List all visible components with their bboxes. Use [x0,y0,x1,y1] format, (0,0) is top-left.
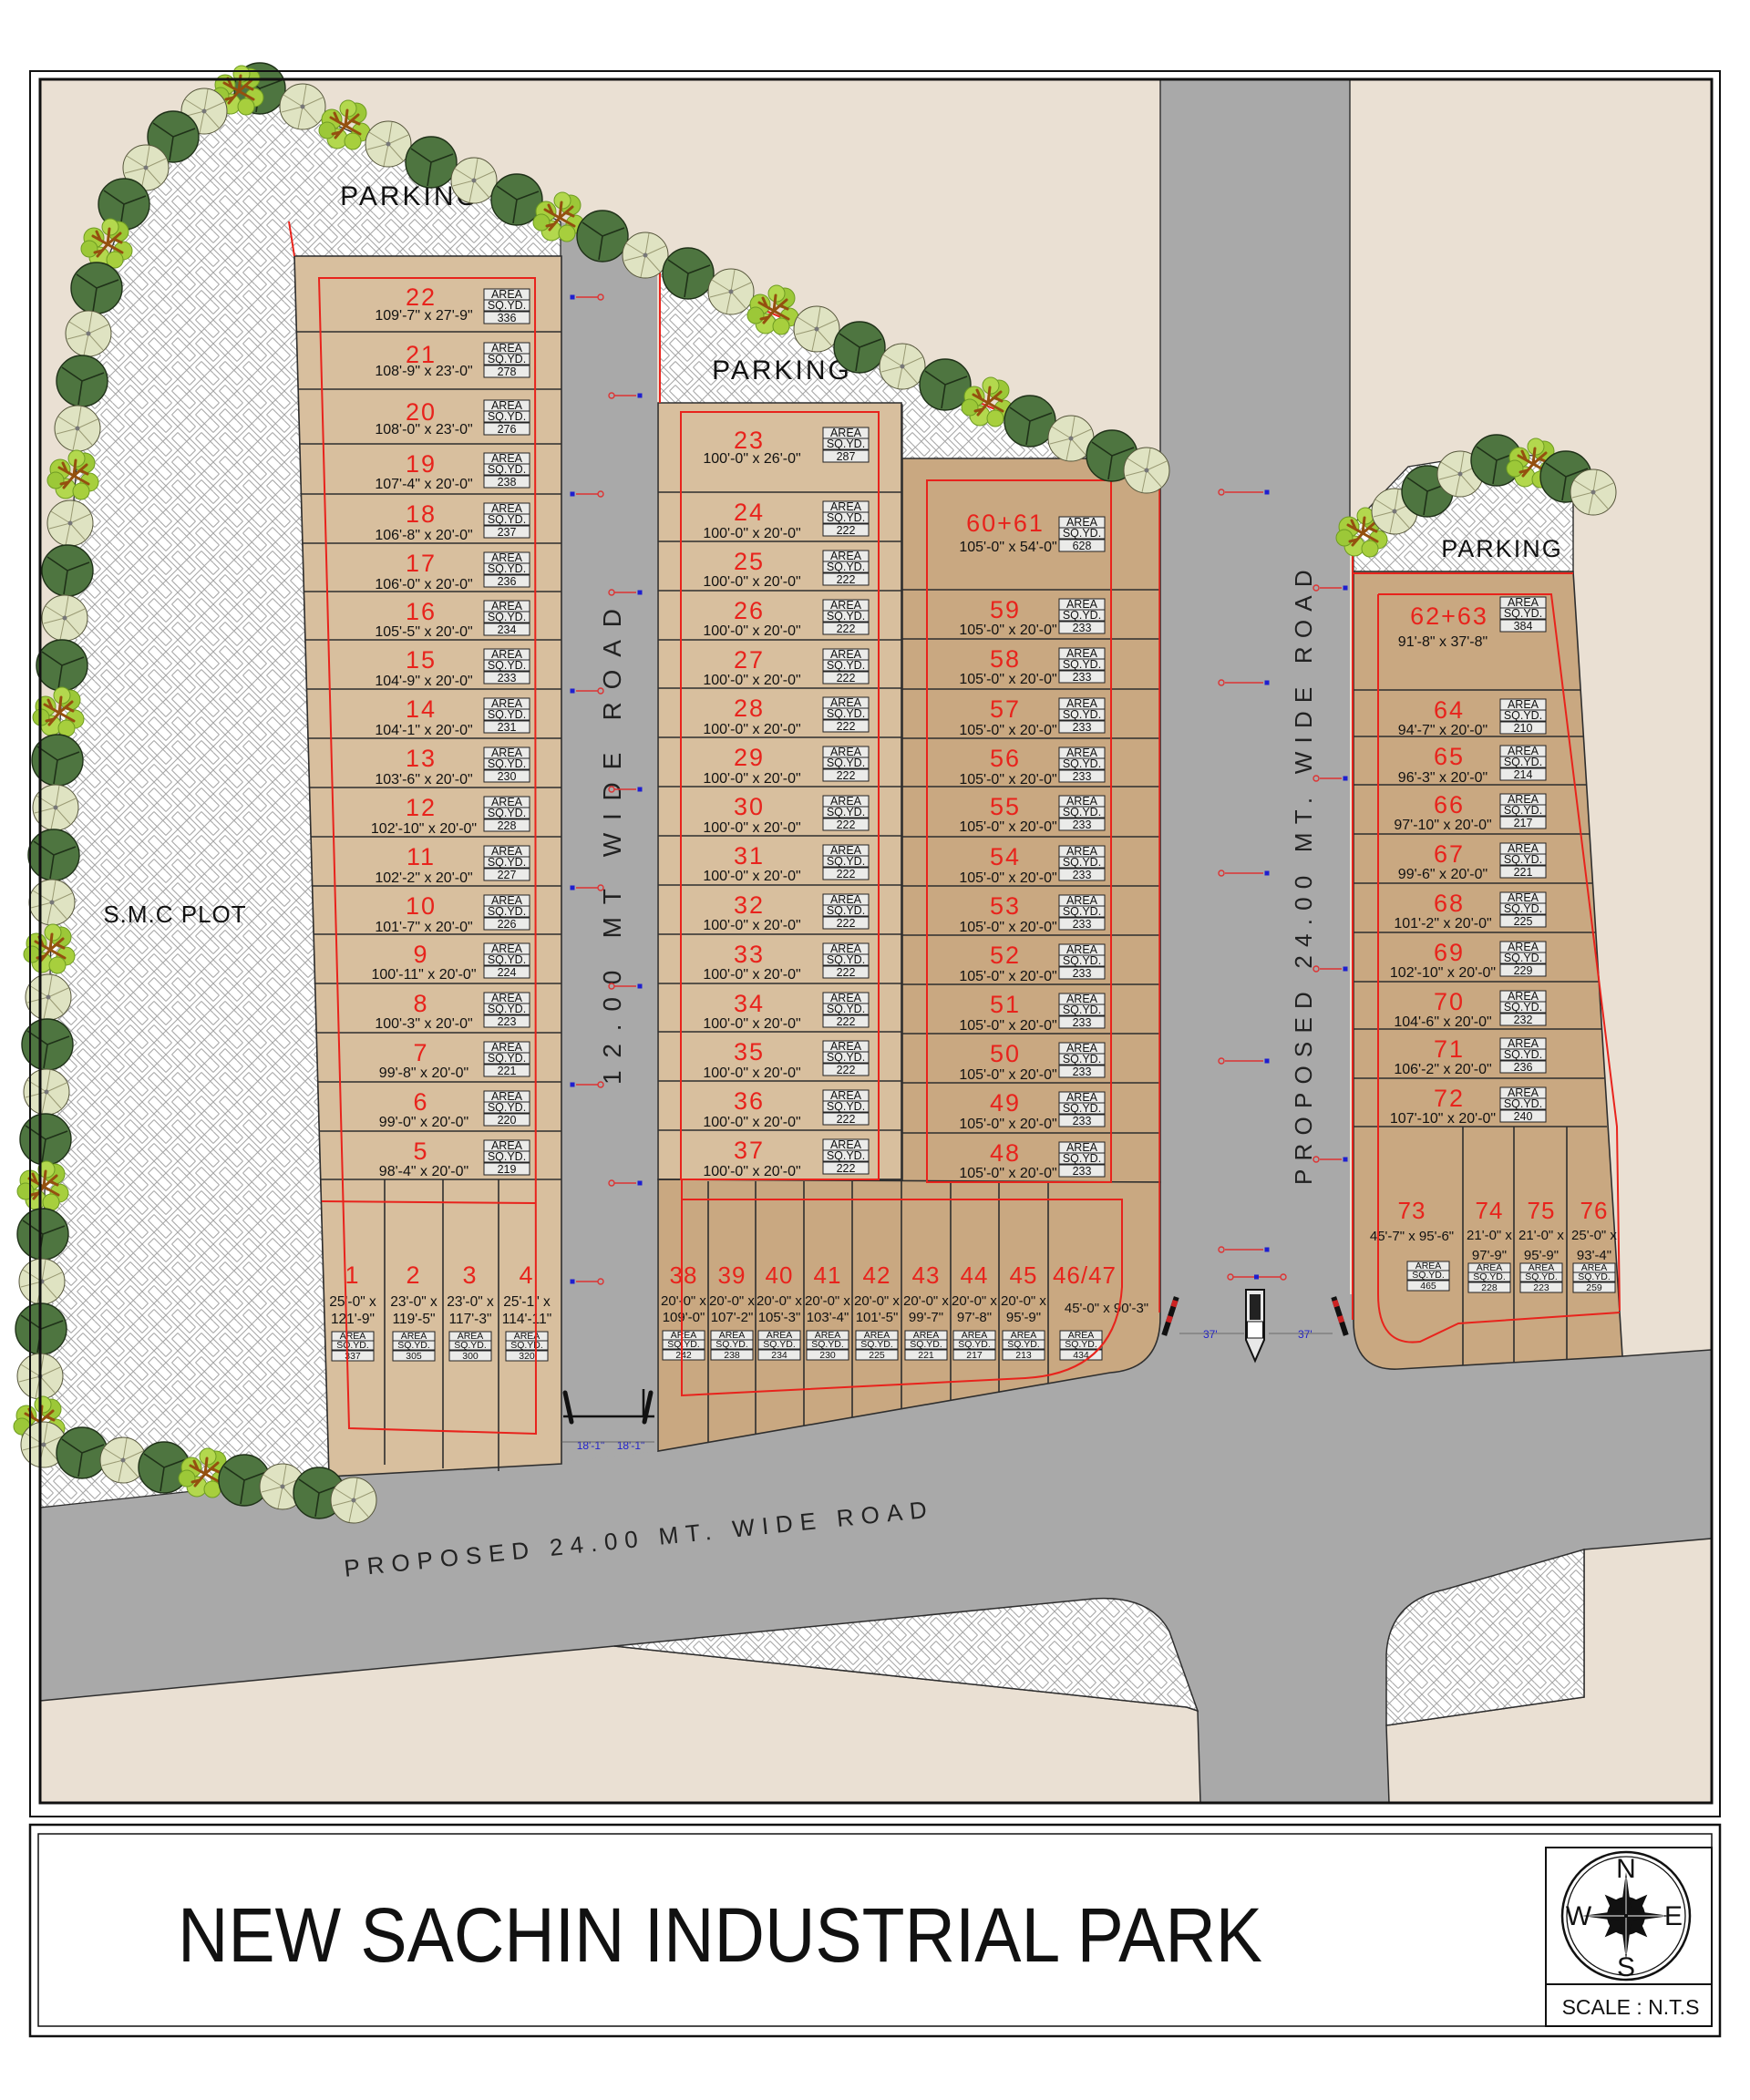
svg-text:234: 234 [771,1350,787,1361]
svg-text:233: 233 [1073,770,1092,783]
svg-text:233: 233 [1073,671,1092,684]
svg-text:64: 64 [1434,696,1465,724]
svg-text:SQ.YD.: SQ.YD. [1504,1097,1542,1110]
svg-text:100'-0" x 20'-0": 100'-0" x 20'-0" [703,1016,800,1032]
svg-text:222: 222 [837,573,856,586]
svg-text:SQ.YD.: SQ.YD. [1525,1271,1558,1282]
svg-text:SQ.YD.: SQ.YD. [1504,1001,1542,1014]
svg-text:22: 22 [406,283,437,311]
svg-text:100'-0" x 20'-0": 100'-0" x 20'-0" [703,771,800,787]
svg-text:31: 31 [734,842,765,870]
svg-text:NEW SACHIN INDUSTRIAL PARK: NEW SACHIN INDUSTRIAL PARK [178,1892,1262,1978]
svg-text:SQ.YD.: SQ.YD. [827,1149,865,1162]
svg-text:39: 39 [718,1261,746,1289]
svg-text:SQ.YD.: SQ.YD. [397,1340,430,1351]
svg-text:SQ.YD.: SQ.YD. [488,562,526,575]
svg-text:30: 30 [734,793,765,820]
svg-text:121'-9": 121'-9" [331,1312,375,1327]
svg-text:SQ.YD.: SQ.YD. [1504,952,1542,964]
svg-text:465: 465 [1420,1281,1436,1292]
svg-text:PROPOSED 24.00 MT. WIDE ROAD: PROPOSED 24.00 MT. WIDE ROAD [1290,561,1317,1185]
svg-text:20'-0" x: 20'-0" x [805,1293,850,1309]
svg-text:SQ.YD.: SQ.YD. [1063,954,1101,967]
svg-text:210: 210 [1514,722,1533,735]
svg-text:100'-0" x 20'-0": 100'-0" x 20'-0" [703,722,800,737]
svg-text:99'-0" x 20'-0": 99'-0" x 20'-0" [379,1115,468,1130]
svg-text:225: 225 [1514,915,1533,928]
svg-text:SQ.YD.: SQ.YD. [1007,1339,1040,1350]
svg-text:65: 65 [1434,743,1465,770]
svg-text:SQ.YD.: SQ.YD. [827,1051,865,1064]
svg-text:44: 44 [961,1261,989,1289]
svg-text:29: 29 [734,744,765,771]
svg-text:214: 214 [1514,768,1533,781]
svg-text:37: 37 [734,1137,765,1164]
svg-text:E: E [1664,1901,1683,1931]
svg-text:71: 71 [1434,1035,1465,1063]
svg-text:222: 222 [837,720,856,733]
svg-text:SQ.YD.: SQ.YD. [827,561,865,573]
svg-text:233: 233 [1073,1115,1092,1127]
svg-text:SQ.YD.: SQ.YD. [811,1339,844,1350]
svg-text:SCALE : N.T.S: SCALE : N.T.S [1562,1995,1700,2019]
svg-text:18'-1": 18'-1" [577,1439,605,1452]
svg-text:101'-7" x 20'-0": 101'-7" x 20'-0" [375,920,472,935]
svg-text:33: 33 [734,941,765,968]
svg-text:230: 230 [498,770,517,783]
svg-text:105'-0" x 20'-0": 105'-0" x 20'-0" [959,1067,1056,1083]
svg-text:23'-0" x: 23'-0" x [390,1294,437,1310]
svg-text:107'-2": 107'-2" [711,1310,754,1325]
svg-text:21'-0" x: 21'-0" x [1467,1228,1512,1243]
svg-text:105'-0" x 20'-0": 105'-0" x 20'-0" [959,1166,1056,1181]
svg-text:222: 222 [837,818,856,831]
svg-text:103'-4": 103'-4" [807,1310,849,1325]
svg-text:278: 278 [498,365,517,378]
svg-text:SQ.YD.: SQ.YD. [1504,853,1542,866]
svg-text:97'-8": 97'-8" [957,1310,992,1325]
svg-text:384: 384 [1514,620,1533,633]
svg-text:SQ.YD.: SQ.YD. [1504,804,1542,817]
svg-text:99'-8" x 20'-0": 99'-8" x 20'-0" [379,1065,468,1081]
svg-text:107'-4" x 20'-0": 107'-4" x 20'-0" [375,477,472,492]
svg-text:276: 276 [498,423,517,436]
svg-text:98'-4" x 20'-0": 98'-4" x 20'-0" [379,1164,468,1179]
svg-text:4: 4 [519,1261,534,1289]
svg-text:100'-0" x 20'-0": 100'-0" x 20'-0" [703,918,800,933]
svg-text:226: 226 [498,918,517,931]
svg-text:119'-5": 119'-5" [393,1312,436,1327]
svg-text:72: 72 [1434,1085,1465,1112]
svg-text:35: 35 [734,1038,765,1065]
svg-text:21'-0" x: 21'-0" x [1518,1228,1564,1243]
svg-text:N: N [1616,1854,1636,1884]
svg-text:231: 231 [498,721,517,734]
svg-text:95'-9": 95'-9" [1524,1248,1559,1263]
svg-text:233: 233 [1073,918,1092,931]
svg-text:34: 34 [734,990,765,1017]
svg-text:222: 222 [837,1162,856,1175]
svg-text:74: 74 [1476,1197,1504,1224]
svg-text:SQ.YD.: SQ.YD. [488,1003,526,1015]
svg-text:233: 233 [1073,869,1092,881]
svg-text:SQ.YD.: SQ.YD. [827,659,865,672]
svg-text:53: 53 [990,892,1021,920]
svg-text:66: 66 [1434,791,1465,818]
svg-text:105'-0" x 20'-0": 105'-0" x 20'-0" [959,1018,1056,1034]
svg-text:105'-0" x 20'-0": 105'-0" x 20'-0" [959,723,1056,738]
svg-text:8: 8 [413,990,428,1017]
svg-text:SQ.YD.: SQ.YD. [1063,708,1101,721]
svg-text:40: 40 [766,1261,794,1289]
svg-text:50: 50 [990,1040,1021,1067]
svg-text:10: 10 [406,892,437,920]
svg-text:102'-10" x 20'-0": 102'-10" x 20'-0" [371,821,477,837]
svg-text:SQ.YD.: SQ.YD. [488,1052,526,1065]
svg-text:109'-7" x 27'-9": 109'-7" x 27'-9" [375,308,472,324]
svg-text:SQ.YD.: SQ.YD. [336,1340,369,1351]
svg-text:222: 222 [837,1015,856,1028]
svg-text:106'-2" x 20'-0": 106'-2" x 20'-0" [1394,1062,1491,1077]
svg-text:100'-3" x 20'-0": 100'-3" x 20'-0" [375,1016,472,1032]
svg-text:38: 38 [670,1261,698,1289]
svg-text:100'-0" x 20'-0": 100'-0" x 20'-0" [703,1115,800,1130]
svg-text:96'-3" x 20'-0": 96'-3" x 20'-0" [1398,770,1487,786]
svg-text:230: 230 [819,1350,836,1361]
svg-text:100'-0" x 20'-0": 100'-0" x 20'-0" [703,967,800,983]
svg-text:12.00 MT WIDE ROAD: 12.00 MT WIDE ROAD [598,596,626,1085]
svg-text:SQ.YD.: SQ.YD. [1504,902,1542,915]
svg-text:PARKING: PARKING [712,355,852,386]
svg-text:97'-9": 97'-9" [1472,1248,1507,1263]
svg-text:67: 67 [1434,840,1465,868]
svg-text:SQ.YD.: SQ.YD. [1063,1004,1101,1016]
svg-text:105'-0" x 20'-0": 105'-0" x 20'-0" [959,819,1056,835]
svg-text:54: 54 [990,843,1021,870]
svg-text:5: 5 [413,1137,428,1165]
svg-text:7: 7 [413,1039,428,1066]
svg-text:62+63: 62+63 [1410,602,1488,630]
svg-text:2: 2 [406,1261,421,1289]
svg-text:51: 51 [990,991,1021,1018]
svg-text:17: 17 [406,550,437,577]
svg-text:102'-2" x 20'-0": 102'-2" x 20'-0" [375,870,472,886]
svg-text:233: 233 [1073,1065,1092,1078]
svg-text:336: 336 [498,312,517,324]
svg-text:SQ.YD.: SQ.YD. [667,1339,700,1350]
svg-text:105'-0" x 20'-0": 105'-0" x 20'-0" [959,969,1056,984]
svg-text:24: 24 [734,499,765,526]
svg-text:219: 219 [498,1163,517,1176]
svg-text:227: 227 [498,869,517,881]
svg-text:106'-8" x 20'-0": 106'-8" x 20'-0" [375,528,472,543]
svg-text:SQ.YD.: SQ.YD. [1063,1053,1101,1065]
svg-text:300: 300 [462,1351,479,1362]
svg-text:SQ.YD.: SQ.YD. [1504,709,1542,722]
svg-text:25'-0" x: 25'-0" x [329,1294,376,1310]
svg-text:20'-0" x: 20'-0" x [952,1293,997,1309]
svg-text:228: 228 [1481,1282,1498,1293]
svg-text:43: 43 [912,1261,941,1289]
svg-text:27: 27 [734,646,765,674]
svg-text:SQ.YD.: SQ.YD. [827,511,865,524]
svg-text:628: 628 [1073,540,1092,552]
svg-text:76: 76 [1580,1197,1609,1224]
svg-text:SQ.YD.: SQ.YD. [1063,905,1101,918]
svg-text:23'-0" x: 23'-0" x [447,1294,494,1310]
svg-text:236: 236 [1514,1061,1533,1074]
svg-text:105'-0" x 20'-0": 105'-0" x 20'-0" [959,672,1056,687]
svg-text:SQ.YD.: SQ.YD. [488,463,526,476]
svg-text:109'-0": 109'-0" [663,1310,705,1325]
svg-text:223: 223 [1533,1282,1549,1293]
svg-text:233: 233 [1073,1165,1092,1178]
svg-text:99'-6" x 20'-0": 99'-6" x 20'-0" [1398,867,1487,882]
svg-text:23: 23 [734,427,765,454]
svg-text:259: 259 [1586,1282,1602,1293]
svg-text:SQ.YD.: SQ.YD. [488,807,526,819]
svg-text:SQ.YD.: SQ.YD. [1504,756,1542,768]
svg-text:SQ.YD.: SQ.YD. [1063,856,1101,869]
svg-text:45'-0" x 90'-3": 45'-0" x 90'-3" [1065,1301,1148,1316]
svg-text:SQ.YD.: SQ.YD. [1473,1271,1506,1282]
svg-text:229: 229 [1514,964,1533,977]
svg-text:49: 49 [990,1089,1021,1117]
svg-text:108'-9" x 23'-0": 108'-9" x 23'-0" [375,364,472,379]
svg-text:SQ.YD.: SQ.YD. [910,1339,942,1350]
svg-text:108'-0" x 23'-0": 108'-0" x 23'-0" [375,422,472,437]
svg-text:68: 68 [1434,890,1465,917]
svg-text:287: 287 [837,450,856,463]
svg-text:91'-8" x 37'-8": 91'-8" x 37'-8" [1398,634,1487,650]
svg-text:69: 69 [1434,939,1465,966]
svg-text:233: 233 [1073,967,1092,980]
svg-text:32: 32 [734,891,765,919]
svg-text:SQ.YD.: SQ.YD. [827,610,865,623]
svg-text:13: 13 [406,745,437,772]
svg-text:233: 233 [1073,818,1092,831]
svg-text:12: 12 [406,794,437,821]
svg-text:105'-0" x 20'-0": 105'-0" x 20'-0" [959,920,1056,935]
svg-text:100'-0" x 26'-0": 100'-0" x 26'-0" [703,451,800,467]
svg-text:105'-5" x 20'-0": 105'-5" x 20'-0" [375,624,472,640]
svg-text:SQ.YD.: SQ.YD. [1063,1152,1101,1165]
svg-text:240: 240 [1514,1110,1533,1123]
svg-text:1: 1 [345,1261,360,1289]
svg-text:20'-0" x: 20'-0" x [903,1293,949,1309]
svg-text:SQ.YD.: SQ.YD. [1063,806,1101,818]
svg-text:SQ.YD.: SQ.YD. [488,410,526,423]
svg-text:100'-0" x 20'-0": 100'-0" x 20'-0" [703,1164,800,1179]
svg-text:W: W [1566,1901,1592,1931]
svg-text:105'-0" x 20'-0": 105'-0" x 20'-0" [959,623,1056,638]
svg-text:SQ.YD.: SQ.YD. [1504,607,1542,620]
svg-text:SQ.YD.: SQ.YD. [827,953,865,966]
svg-text:SQ.YD.: SQ.YD. [715,1339,748,1350]
svg-text:SQ.YD.: SQ.YD. [1504,1048,1542,1061]
svg-text:222: 222 [837,917,856,930]
svg-text:106'-0" x 20'-0": 106'-0" x 20'-0" [375,577,472,592]
svg-text:20'-0" x: 20'-0" x [757,1293,802,1309]
svg-text:234: 234 [498,623,517,636]
svg-text:20'-0" x: 20'-0" x [661,1293,706,1309]
svg-text:101'-5": 101'-5" [856,1310,899,1325]
svg-text:220: 220 [498,1114,517,1127]
svg-text:233: 233 [1073,1016,1092,1029]
svg-text:SQ.YD.: SQ.YD. [488,513,526,526]
svg-text:SQ.YD.: SQ.YD. [827,806,865,818]
svg-text:305: 305 [406,1351,422,1362]
svg-text:100'-0" x 20'-0": 100'-0" x 20'-0" [703,1065,800,1081]
svg-text:SQ.YD.: SQ.YD. [488,299,526,312]
svg-text:105'-3": 105'-3" [758,1310,801,1325]
svg-text:SQ.YD.: SQ.YD. [488,856,526,869]
svg-text:93'-4": 93'-4" [1577,1248,1611,1263]
svg-text:18: 18 [406,500,437,528]
svg-text:16: 16 [406,598,437,625]
svg-text:70: 70 [1434,988,1465,1015]
svg-text:SQ.YD.: SQ.YD. [510,1340,543,1351]
svg-text:238: 238 [724,1350,740,1361]
svg-text:18'-1": 18'-1" [617,1439,645,1452]
svg-text:SQ.YD.: SQ.YD. [488,953,526,966]
svg-text:100'-0" x 20'-0": 100'-0" x 20'-0" [703,526,800,541]
svg-text:SQ.YD.: SQ.YD. [488,757,526,770]
svg-text:104'-1" x 20'-0": 104'-1" x 20'-0" [375,723,472,738]
svg-text:105'-0" x 20'-0": 105'-0" x 20'-0" [959,1117,1056,1132]
svg-text:SQ.YD.: SQ.YD. [488,659,526,672]
svg-text:SQ.YD.: SQ.YD. [488,1101,526,1114]
svg-text:242: 242 [675,1350,692,1361]
svg-text:222: 222 [837,966,856,979]
svg-text:20'-0" x: 20'-0" x [854,1293,900,1309]
svg-text:228: 228 [498,819,517,832]
svg-text:221: 221 [918,1350,934,1361]
svg-text:222: 222 [837,672,856,685]
svg-text:PARKING: PARKING [1441,535,1563,562]
svg-text:104'-6" x 20'-0": 104'-6" x 20'-0" [1394,1014,1491,1030]
svg-text:45: 45 [1010,1261,1038,1289]
svg-text:37': 37' [1203,1328,1218,1341]
svg-text:SQ.YD.: SQ.YD. [827,757,865,769]
svg-text:11: 11 [407,843,436,870]
svg-text:107'-10" x 20'-0": 107'-10" x 20'-0" [1390,1111,1496,1127]
svg-text:222: 222 [837,868,856,880]
svg-text:224: 224 [498,966,517,979]
svg-text:SQ.YD.: SQ.YD. [860,1339,893,1350]
svg-text:57: 57 [990,695,1021,723]
svg-text:100'-0" x 20'-0": 100'-0" x 20'-0" [703,574,800,590]
svg-text:233: 233 [1073,721,1092,734]
svg-text:SQ.YD.: SQ.YD. [488,905,526,918]
svg-text:SQ.YD.: SQ.YD. [488,353,526,365]
svg-text:60+61: 60+61 [966,510,1045,537]
svg-text:97'-10" x 20'-0": 97'-10" x 20'-0" [1394,818,1491,833]
svg-text:SQ.YD.: SQ.YD. [827,707,865,720]
svg-text:48: 48 [990,1139,1021,1167]
svg-text:SQ.YD.: SQ.YD. [1412,1270,1445,1281]
svg-text:SQ.YD.: SQ.YD. [763,1339,796,1350]
svg-text:75: 75 [1528,1197,1556,1224]
svg-text:117'-3": 117'-3" [449,1312,492,1327]
svg-text:20'-0" x: 20'-0" x [709,1293,755,1309]
svg-text:217: 217 [1514,817,1533,829]
svg-text:238: 238 [498,476,517,489]
svg-text:225: 225 [869,1350,885,1361]
svg-text:222: 222 [837,1064,856,1076]
svg-text:232: 232 [1514,1014,1533,1026]
svg-text:217: 217 [966,1350,983,1361]
svg-text:SQ.YD.: SQ.YD. [827,1100,865,1113]
svg-text:73: 73 [1398,1197,1426,1224]
svg-text:42: 42 [863,1261,891,1289]
svg-text:233: 233 [498,672,517,685]
svg-text:S.M.C PLOT: S.M.C PLOT [103,901,246,928]
svg-text:SQ.YD.: SQ.YD. [1063,658,1101,671]
svg-text:58: 58 [990,645,1021,673]
svg-text:55: 55 [990,793,1021,820]
svg-text:95'-9": 95'-9" [1006,1310,1041,1325]
svg-text:SQ.YD.: SQ.YD. [488,611,526,623]
svg-text:320: 320 [519,1351,535,1362]
svg-text:SQ.YD.: SQ.YD. [488,1150,526,1163]
svg-text:6: 6 [413,1088,428,1116]
svg-text:SQ.YD.: SQ.YD. [827,437,865,450]
svg-text:223: 223 [498,1015,517,1028]
svg-text:105'-0" x 20'-0": 105'-0" x 20'-0" [959,870,1056,886]
svg-text:233: 233 [1073,622,1092,634]
svg-text:26: 26 [734,597,765,624]
svg-text:SQ.YD.: SQ.YD. [827,904,865,917]
svg-text:3: 3 [462,1261,478,1289]
svg-text:46/47: 46/47 [1053,1261,1117,1289]
svg-text:28: 28 [734,695,765,722]
svg-text:100'-0" x 20'-0": 100'-0" x 20'-0" [703,673,800,688]
svg-text:222: 222 [837,769,856,782]
svg-text:104'-9" x 20'-0": 104'-9" x 20'-0" [375,674,472,689]
svg-text:SQ.YD.: SQ.YD. [488,708,526,721]
svg-text:237: 237 [498,526,517,539]
svg-text:19: 19 [406,450,437,478]
svg-text:SQ.YD.: SQ.YD. [1065,1339,1097,1350]
svg-text:100'-0" x 20'-0": 100'-0" x 20'-0" [703,869,800,884]
svg-text:236: 236 [498,575,517,588]
svg-text:100'-0" x 20'-0": 100'-0" x 20'-0" [703,623,800,639]
svg-text:52: 52 [990,942,1021,969]
svg-text:100'-0" x 20'-0": 100'-0" x 20'-0" [703,820,800,836]
svg-text:SQ.YD.: SQ.YD. [1063,527,1101,540]
svg-text:25: 25 [734,548,765,575]
svg-text:221: 221 [498,1065,517,1077]
svg-text:SQ.YD.: SQ.YD. [1578,1271,1611,1282]
svg-text:101'-2" x 20'-0": 101'-2" x 20'-0" [1394,916,1491,932]
svg-text:105'-0" x 54'-0": 105'-0" x 54'-0" [959,540,1056,555]
svg-text:25'-0" x: 25'-0" x [1571,1228,1617,1243]
svg-text:SQ.YD.: SQ.YD. [454,1340,487,1351]
svg-text:221: 221 [1514,866,1533,879]
svg-text:94'-7" x 20'-0": 94'-7" x 20'-0" [1398,723,1487,738]
svg-text:103'-6" x 20'-0": 103'-6" x 20'-0" [375,772,472,787]
svg-text:59: 59 [990,596,1021,623]
svg-text:99'-7": 99'-7" [909,1310,943,1325]
svg-text:SQ.YD.: SQ.YD. [1063,1102,1101,1115]
svg-text:222: 222 [837,1113,856,1126]
svg-text:25'-1" x: 25'-1" x [503,1294,551,1310]
svg-text:45'-7" x 95'-6": 45'-7" x 95'-6" [1370,1229,1454,1244]
svg-text:222: 222 [837,524,856,537]
svg-text:14: 14 [406,695,437,723]
svg-text:213: 213 [1015,1350,1032,1361]
